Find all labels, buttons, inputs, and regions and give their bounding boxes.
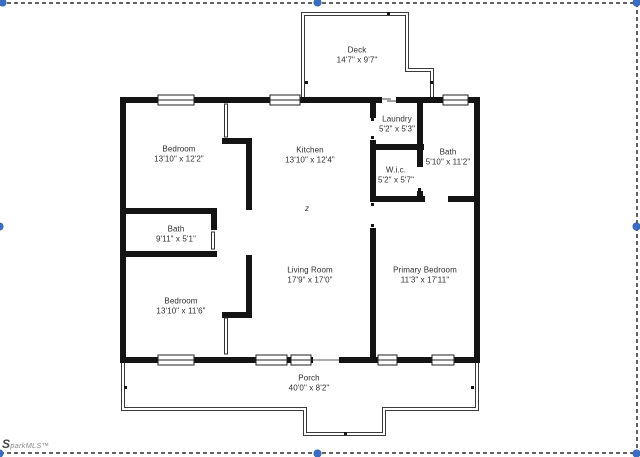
room-name: W.i.c.: [378, 166, 414, 176]
room-dims: 13'10" x 12'4": [285, 155, 335, 165]
room-name: Bedroom: [154, 145, 204, 155]
room-name: Deck: [337, 46, 378, 56]
room-dims: 11'3" x 17'11": [393, 275, 457, 285]
room-label-kitchen: Kitchen 13'10" x 12'4": [285, 146, 335, 165]
room-label-laundry: Laundry 5'2" x 5'3": [379, 115, 415, 134]
selection-handle-bottom-middle[interactable]: [314, 450, 321, 457]
room-label-porch: Porch 40'0" x 8'2": [289, 374, 330, 393]
plan-stray-mark: z: [305, 204, 309, 213]
room-dims: 40'0" x 8'2": [289, 383, 330, 393]
room-label-bath-right: Bath 5'10" x 11'2": [426, 148, 471, 167]
room-label-deck: Deck 14'7" x 9'7": [337, 46, 378, 65]
room-name: Porch: [289, 374, 330, 384]
room-dims: 13'10" x 12'2": [154, 154, 204, 164]
room-dims: 13'10" x 11'6": [156, 306, 205, 316]
room-dims: 14'7" x 9'7": [337, 55, 378, 65]
room-dims: 5'2" x 5'3": [379, 124, 415, 134]
room-label-bath-left: Bath 9'11" x 5'1": [156, 225, 196, 244]
room-label-living-room: Living Room 17'9" x 17'0": [287, 266, 333, 285]
room-name: Bedroom: [156, 297, 205, 307]
walls: [120, 12, 480, 435]
selection-handle-bottom-right[interactable]: [633, 450, 640, 457]
room-name: Kitchen: [285, 146, 335, 156]
room-label-bedroom-1: Bedroom 13'10" x 12'2": [154, 145, 204, 164]
room-dims: 5'10" x 11'2": [426, 157, 471, 167]
room-dims: 9'11" x 5'1": [156, 234, 196, 244]
room-name: Bath: [426, 148, 471, 158]
room-label-wic: W.i.c. 5'2" x 5'7": [378, 166, 414, 185]
floor-plan-image[interactable]: Deck 14'7" x 9'7" Bedroom 13'10" x 12'2"…: [0, 0, 640, 457]
room-name: Bath: [156, 225, 196, 235]
selection-handle-right-middle[interactable]: [633, 223, 640, 230]
room-name: Living Room: [287, 266, 333, 276]
doors: [212, 96, 397, 364]
room-dims: 17'9" x 17'0": [287, 275, 333, 285]
room-dims: 5'2" x 5'7": [378, 175, 414, 185]
room-label-primary-bedroom: Primary Bedroom 11'3" x 17'11": [393, 266, 457, 285]
mls-watermark: SparkMLS™: [2, 437, 49, 453]
room-name: Laundry: [379, 115, 415, 125]
room-label-bedroom-2: Bedroom 13'10" x 11'6": [156, 297, 205, 316]
room-name: Primary Bedroom: [393, 266, 457, 276]
